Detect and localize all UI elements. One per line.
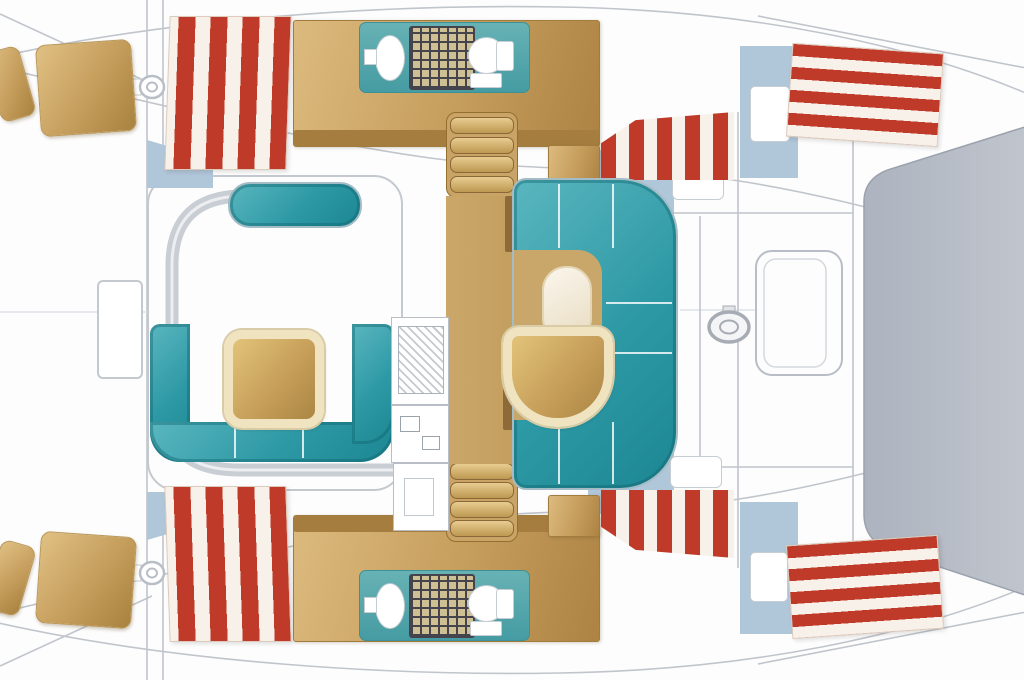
cushion-seam xyxy=(558,422,560,484)
step-tread xyxy=(450,520,514,537)
burner xyxy=(422,436,440,450)
head-port xyxy=(359,22,530,93)
cushion-seam xyxy=(612,422,614,484)
cushion-seam xyxy=(606,302,672,304)
step-tread xyxy=(450,501,514,518)
counter-inset xyxy=(404,478,434,516)
deck-fitting xyxy=(131,76,164,98)
galley-sink-unit xyxy=(391,317,449,405)
forward-cockpit-table xyxy=(224,330,324,428)
galley-sink xyxy=(398,326,444,394)
step-tread xyxy=(450,137,514,154)
sink xyxy=(375,583,405,629)
sink xyxy=(375,35,405,81)
mid-cabin-shelf-starboard xyxy=(670,456,722,488)
forepeak-berth-port xyxy=(35,39,137,137)
forward-cabin-berth-starboard xyxy=(164,486,291,642)
step-tread xyxy=(450,482,514,499)
catamaran-deck-plan xyxy=(0,0,1024,680)
step-tread xyxy=(450,463,514,480)
helm-wheel xyxy=(709,306,749,342)
faucet xyxy=(364,49,377,65)
cushion-seam xyxy=(558,184,560,248)
sofa-right-arm xyxy=(352,324,394,444)
shower-grate xyxy=(409,574,475,638)
forepeak-berth-starboard xyxy=(35,531,137,629)
cushion-seam xyxy=(302,426,304,458)
shelf xyxy=(470,621,502,636)
step-tread xyxy=(450,176,514,193)
companionway-steps-starboard xyxy=(446,458,518,542)
aft-platform xyxy=(864,126,1024,596)
faucet xyxy=(364,597,377,613)
step-tread xyxy=(450,117,514,134)
toilet-tank xyxy=(496,589,514,619)
cockpit-table xyxy=(756,251,842,375)
toilet-tank xyxy=(496,41,514,71)
aft-cabin-berth-starboard xyxy=(786,535,944,639)
forward-cabin-berth-port xyxy=(164,16,291,170)
hull-sole-wing-starboard xyxy=(548,495,600,537)
aft-cabin-nightstand-starboard xyxy=(750,552,788,602)
head-starboard xyxy=(359,570,530,641)
burner xyxy=(400,416,420,432)
companionway-steps-port xyxy=(446,112,518,198)
foredeck-hatch xyxy=(98,281,142,378)
shelf xyxy=(470,73,502,88)
cushion-seam xyxy=(606,352,672,354)
aft-cabin-nightstand-port xyxy=(750,86,790,142)
galley-stove xyxy=(391,405,449,463)
shower-grate xyxy=(409,26,475,90)
aft-cabin-berth-port xyxy=(786,43,944,147)
forward-cockpit-bench xyxy=(228,182,362,228)
cushion-seam xyxy=(612,184,614,248)
step-tread xyxy=(450,156,514,173)
deck-fitting xyxy=(131,562,164,584)
cushion-seam xyxy=(234,426,236,458)
galley-counter xyxy=(393,463,449,531)
